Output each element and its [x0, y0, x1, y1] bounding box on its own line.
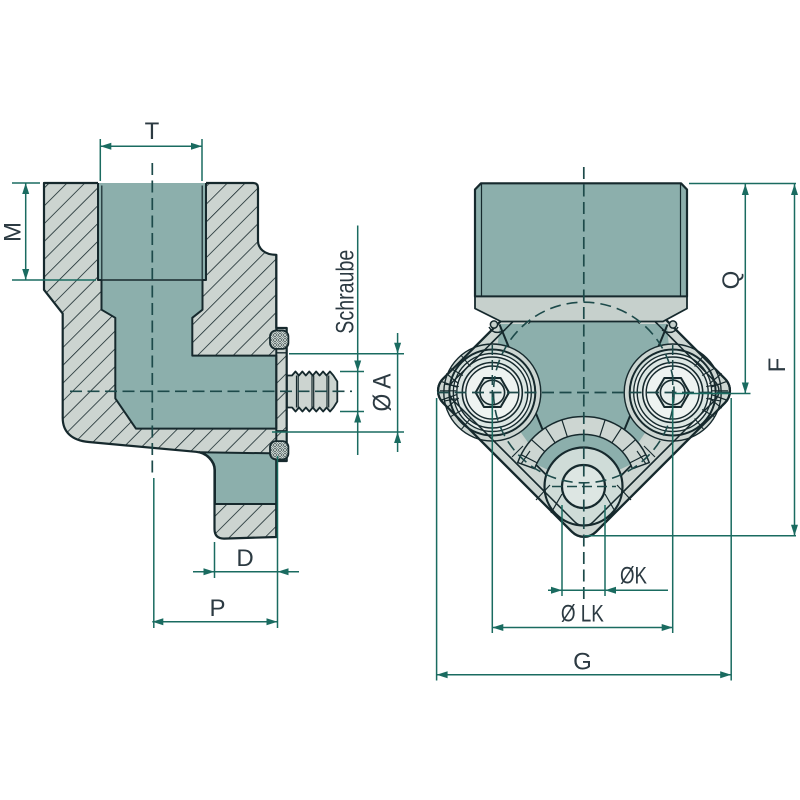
svg-text:G: G [573, 649, 592, 676]
svg-text:F: F [764, 358, 791, 373]
svg-text:ØK: ØK [620, 563, 647, 590]
svg-text:M: M [0, 222, 27, 242]
svg-text:Ø LK: Ø LK [561, 601, 604, 628]
svg-text:Schraube: Schraube [332, 250, 360, 334]
svg-text:Ø A: Ø A [369, 373, 397, 411]
svg-text:D: D [236, 545, 253, 572]
svg-text:T: T [145, 118, 160, 145]
svg-text:P: P [209, 595, 225, 622]
svg-text:Q: Q [718, 271, 745, 290]
